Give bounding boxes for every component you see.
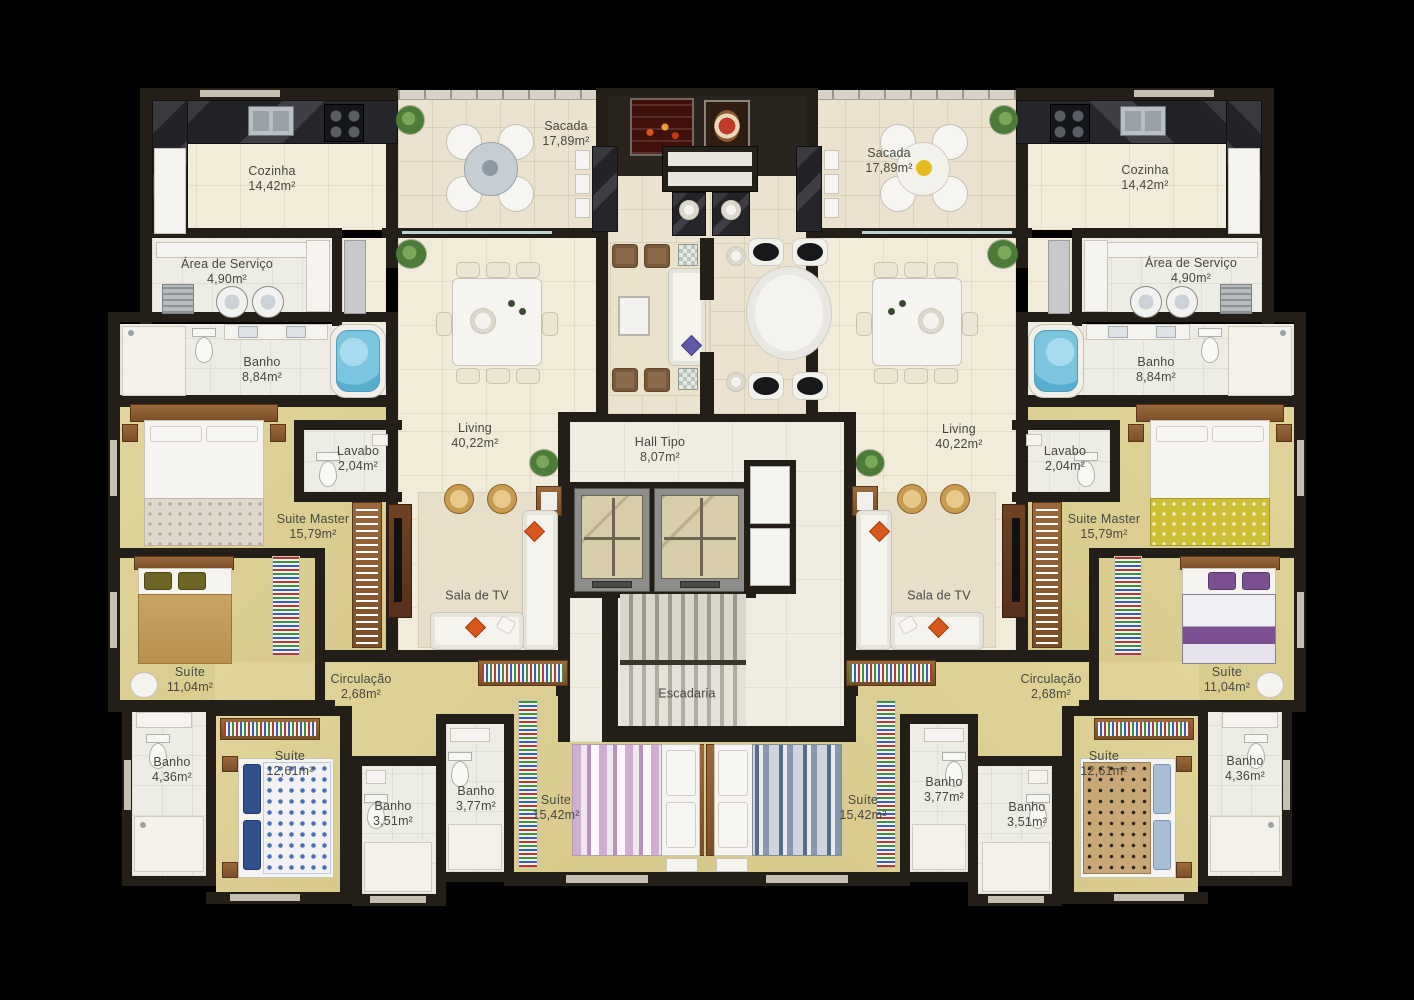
room-label-sacada-left: Sacada17,89m² — [542, 119, 589, 150]
room-area: 4,90m² — [181, 272, 273, 287]
round-table — [746, 266, 832, 360]
room-name: Banho — [1136, 355, 1176, 370]
pizza-oven-icon — [704, 100, 750, 152]
floor-plan: Cozinha14,42m² Sacada17,89m² Área de Ser… — [0, 0, 1414, 1000]
room-area: 14,42m² — [1121, 178, 1168, 193]
armchair — [644, 368, 670, 392]
room-name: Suíte — [839, 793, 886, 808]
elevator-cab — [581, 495, 643, 579]
room-name: Suíte — [167, 665, 213, 680]
room-label-sala-tv-right: Sala de TV — [907, 588, 971, 603]
room-area: 40,22m² — [935, 437, 982, 452]
counter-shelf — [668, 172, 752, 186]
room-area: 8,07m² — [635, 450, 685, 465]
room-label-sacada-right: Sacada17,89m² — [865, 146, 912, 177]
bar-stool — [824, 174, 839, 194]
room-name: Lavabo — [1044, 444, 1086, 459]
center-area — [0, 0, 1414, 1000]
chair-cushion — [797, 243, 823, 261]
room-name: Sala de TV — [445, 588, 509, 603]
room-area: 12,61m² — [266, 764, 313, 779]
room-name: Circulação — [1020, 672, 1081, 687]
wall — [608, 88, 806, 96]
room-name: Suite Master — [1068, 512, 1141, 527]
room-area: 14,42m² — [248, 179, 295, 194]
room-name: Cozinha — [248, 164, 295, 179]
room-label-suite-master-left: Suite Master15,79m² — [277, 512, 350, 543]
room-area: 3,51m² — [373, 814, 413, 829]
room-label-banho351-right: Banho3,51m² — [1007, 800, 1047, 831]
room-label-banho436-right: Banho4,36m² — [1225, 754, 1265, 785]
glass-table — [678, 368, 698, 390]
room-area: 2,68m² — [330, 687, 391, 702]
room-area: 4,36m² — [1225, 769, 1265, 784]
room-label-suite-master-right: Suite Master15,79m² — [1068, 512, 1141, 543]
round-basin-icon — [679, 200, 699, 220]
elevator-cross — [664, 537, 735, 540]
armchair — [644, 244, 670, 268]
room-label-cozinha-left: Cozinha14,42m² — [248, 164, 295, 195]
room-area: 12,61m² — [1080, 764, 1127, 779]
armchair — [612, 244, 638, 268]
room-name: Banho — [1225, 754, 1265, 769]
room-name: Banho — [152, 755, 192, 770]
room-name: Banho — [373, 799, 413, 814]
wall — [596, 88, 608, 414]
room-area: 15,79m² — [277, 527, 350, 542]
room-name: Suíte — [532, 793, 579, 808]
room-label-banho884-right: Banho8,84m² — [1136, 355, 1176, 386]
chair-cushion — [753, 377, 779, 395]
room-area: 3,77m² — [924, 790, 964, 805]
shaft-door — [750, 466, 790, 524]
room-label-circulacao-left: Circulação2,68m² — [330, 672, 391, 703]
room-label-suite1542-right: Suíte15,42m² — [839, 793, 886, 824]
room-label-servico-left: Área de Serviço4,90m² — [181, 257, 273, 288]
room-area: 15,79m² — [1068, 527, 1141, 542]
bar-stool — [824, 150, 839, 170]
room-name: Living — [935, 422, 982, 437]
room-area: 4,36m² — [152, 770, 192, 785]
room-name: Sacada — [865, 146, 912, 161]
room-label-living-right: Living40,22m² — [935, 422, 982, 453]
room-label-servico-right: Área de Serviço4,90m² — [1145, 256, 1237, 287]
room-label-lavabo-left: Lavabo2,04m² — [337, 444, 379, 475]
room-label-escadaria: Escadaria — [658, 686, 715, 701]
room-area: 17,89m² — [542, 134, 589, 149]
room-name: Suite Master — [277, 512, 350, 527]
room-area: 2,04m² — [1044, 459, 1086, 474]
room-label-sala-tv-left: Sala de TV — [445, 588, 509, 603]
room-label-hall-tipo: Hall Tipo8,07m² — [635, 435, 685, 466]
bar-counter — [592, 146, 618, 232]
room-label-banho351-left: Banho3,51m² — [373, 799, 413, 830]
room-area: 11,04m² — [1204, 680, 1250, 695]
room-name: Sala de TV — [907, 588, 971, 603]
room-name: Cozinha — [1121, 163, 1168, 178]
room-name: Circulação — [330, 672, 391, 687]
room-label-suite1261-right: Suíte12,61m² — [1080, 749, 1127, 780]
room-label-banho377-right: Banho3,77m² — [924, 775, 964, 806]
room-label-suite1542-left: Suíte15,42m² — [532, 793, 579, 824]
room-name: Living — [451, 421, 498, 436]
bar-stool — [824, 198, 839, 218]
room-name: Lavabo — [337, 444, 379, 459]
chair-cushion — [753, 243, 779, 261]
wall — [700, 238, 714, 300]
room-label-banho436-left: Banho4,36m² — [152, 755, 192, 786]
dining-chair — [748, 372, 784, 400]
elevator-cross — [584, 537, 640, 540]
room-name: Hall Tipo — [635, 435, 685, 450]
stair-wall — [602, 594, 618, 730]
pizza-icon — [714, 110, 740, 142]
coffee-table — [618, 296, 650, 336]
room-area: 11,04m² — [167, 680, 213, 695]
side-table — [726, 372, 746, 392]
stairs — [620, 594, 746, 660]
room-name: Área de Serviço — [1145, 256, 1237, 271]
armchair — [612, 368, 638, 392]
room-area: 15,42m² — [839, 808, 886, 823]
room-name: Área de Serviço — [181, 257, 273, 272]
room-area: 2,68m² — [1020, 687, 1081, 702]
room-area: 8,84m² — [242, 370, 282, 385]
room-name: Banho — [924, 775, 964, 790]
room-name: Banho — [456, 784, 496, 799]
room-name: Escadaria — [658, 686, 715, 701]
room-name: Suíte — [266, 749, 313, 764]
room-name: Banho — [242, 355, 282, 370]
round-basin-icon — [721, 200, 741, 220]
room-label-living-left: Living40,22m² — [451, 421, 498, 452]
shaft-door — [750, 528, 790, 586]
room-area: 40,22m² — [451, 436, 498, 451]
wall — [602, 726, 856, 742]
room-label-suite1104-right: Suíte11,04m² — [1204, 665, 1250, 696]
room-label-suite1261-left: Suíte12,61m² — [266, 749, 313, 780]
room-name: Banho — [1007, 800, 1047, 815]
chair-cushion — [797, 377, 823, 395]
dining-chair — [792, 372, 828, 400]
room-label-suite1104-left: Suíte11,04m² — [167, 665, 213, 696]
room-label-circulacao-right: Circulação2,68m² — [1020, 672, 1081, 703]
room-area: 8,84m² — [1136, 370, 1176, 385]
elevator-sill — [680, 581, 720, 588]
room-area: 15,42m² — [532, 808, 579, 823]
room-name: Suíte — [1204, 665, 1250, 680]
room-area: 3,77m² — [456, 799, 496, 814]
room-name: Suíte — [1080, 749, 1127, 764]
bar-stool — [575, 150, 590, 170]
room-label-banho377-left: Banho3,77m² — [456, 784, 496, 815]
bar-stool — [575, 174, 590, 194]
counter-shelf — [668, 152, 752, 166]
bar-counter — [796, 146, 822, 232]
bar-stool — [575, 198, 590, 218]
wall — [700, 352, 714, 414]
dining-chair — [792, 238, 828, 266]
dining-chair — [748, 238, 784, 266]
side-table — [726, 246, 746, 266]
room-area: 17,89m² — [865, 161, 912, 176]
room-name: Sacada — [542, 119, 589, 134]
room-area: 2,04m² — [337, 459, 379, 474]
room-area: 4,90m² — [1145, 271, 1237, 286]
elevator-sill — [592, 581, 632, 588]
elevator-cab — [661, 495, 739, 579]
room-label-lavabo-right: Lavabo2,04m² — [1044, 444, 1086, 475]
glass-table — [678, 244, 698, 266]
room-label-cozinha-right: Cozinha14,42m² — [1121, 163, 1168, 194]
room-area: 3,51m² — [1007, 815, 1047, 830]
room-label-banho884-left: Banho8,84m² — [242, 355, 282, 386]
